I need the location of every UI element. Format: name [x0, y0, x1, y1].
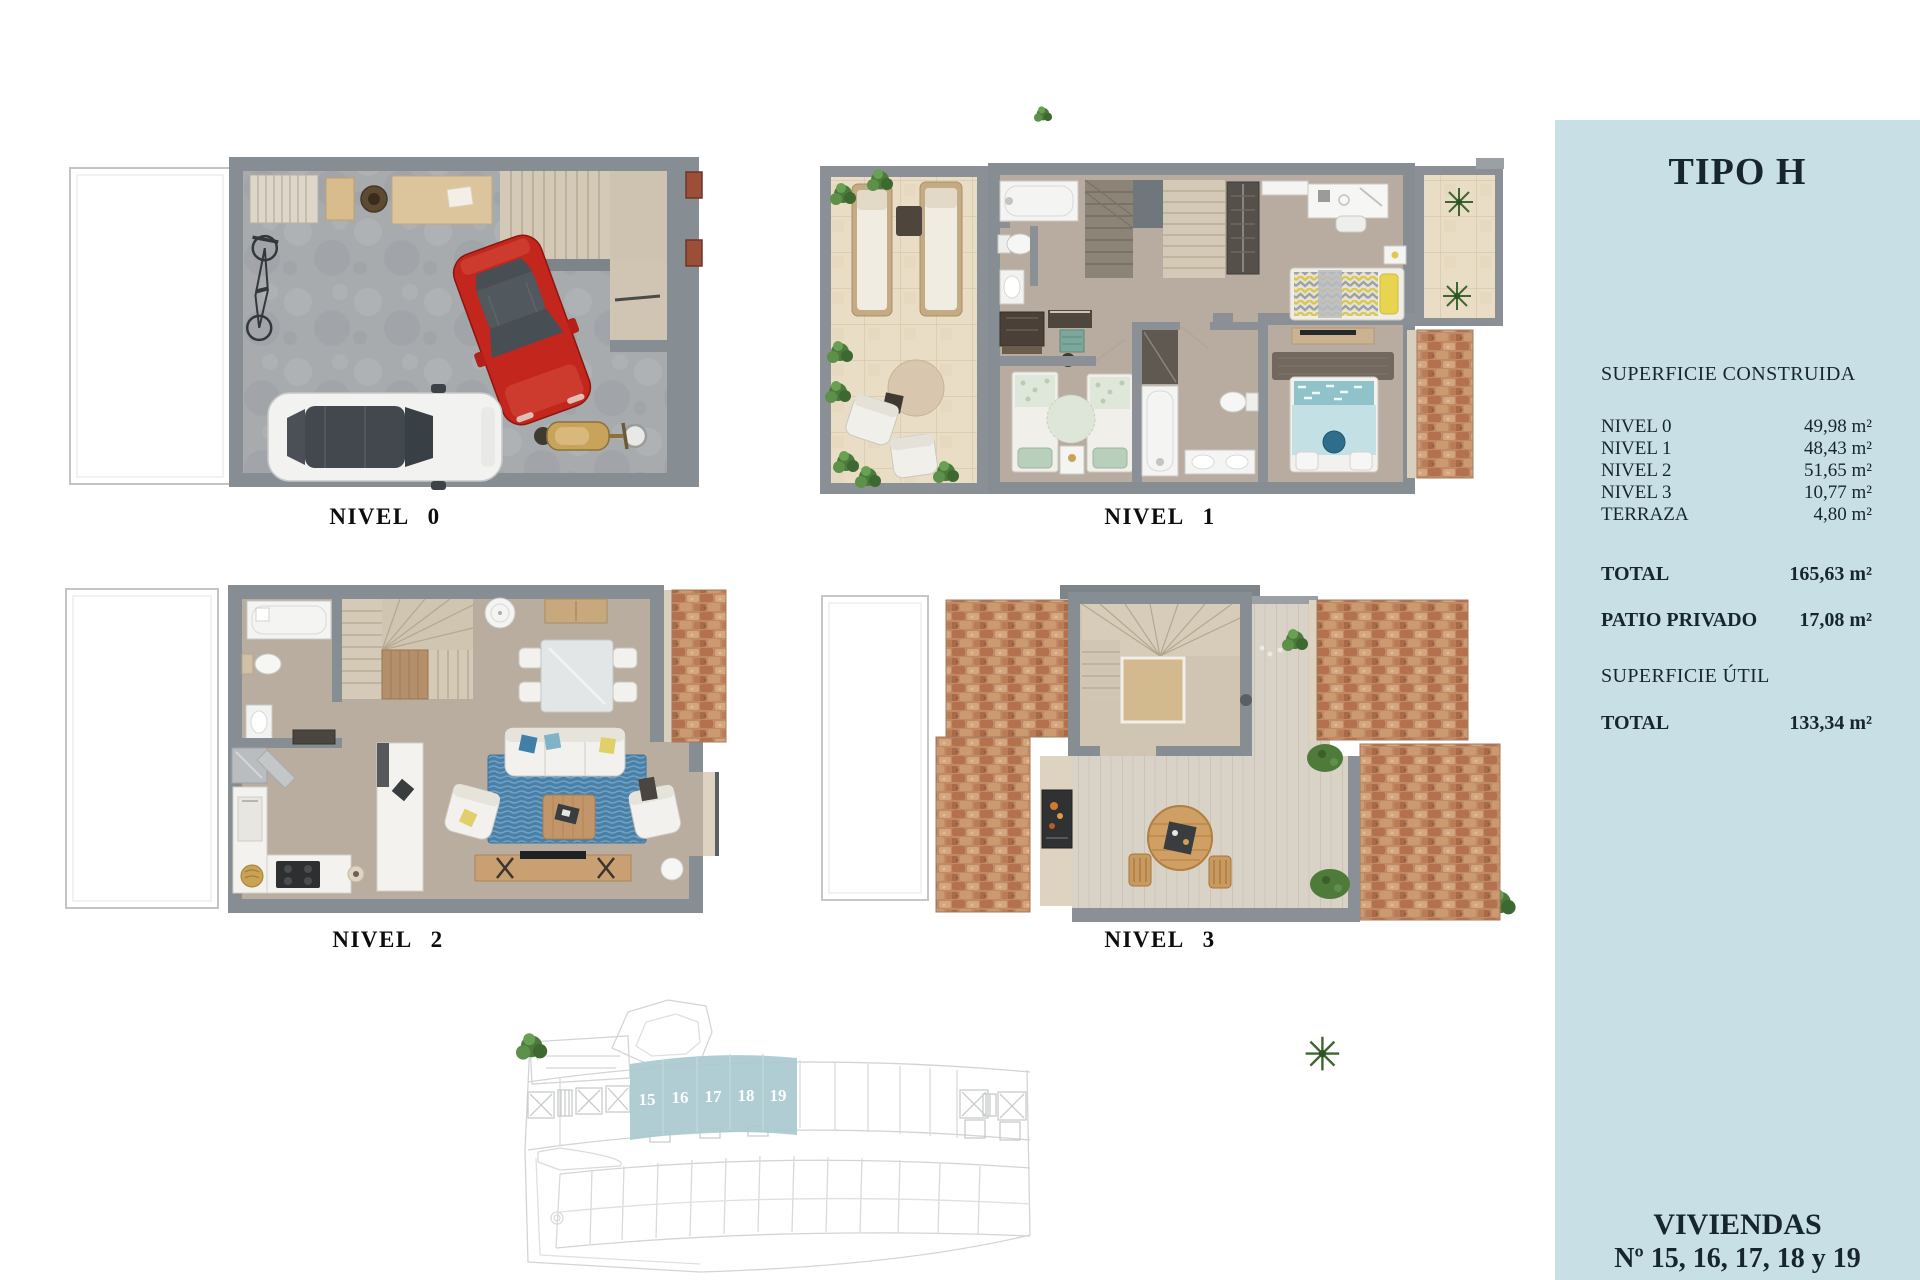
type-title: TIPO H — [1555, 150, 1920, 194]
floor-lamp — [661, 858, 683, 880]
unit-number: 15 — [639, 1090, 656, 1109]
bush — [1310, 869, 1350, 899]
sun-lounger — [920, 182, 962, 316]
white-car — [268, 384, 502, 490]
dwellings-title: VIVIENDAS — [1555, 1208, 1920, 1242]
terrace-wall — [1252, 596, 1318, 604]
surface-row: TERRAZA 4,80 m² — [1601, 504, 1872, 526]
sun-lounger — [852, 184, 892, 316]
coffee-table — [543, 795, 595, 839]
nivel1-caption: NIVEL 1 — [818, 504, 1502, 530]
surface-row: NIVEL 2 51,65 m² — [1601, 460, 1872, 482]
surface-row-value: 10,77 m² — [1804, 482, 1872, 504]
patio-value: 17,08 m² — [1799, 609, 1872, 632]
surface-row: NIVEL 0 49,98 m² — [1601, 416, 1872, 438]
spec-sidebar: TIPO H SUPERFICIE CONSTRUIDA NIVEL 0 49,… — [1555, 120, 1920, 1280]
nivel2-caption: NIVEL 2 — [66, 927, 710, 953]
armchair — [889, 433, 938, 479]
teal-cabinet — [1060, 330, 1084, 352]
site-plan: 15 16 17 18 19 — [525, 1000, 1030, 1272]
built-surface-table: NIVEL 0 49,98 m² NIVEL 1 48,43 m² NIVEL … — [1601, 416, 1872, 526]
brick-roof — [672, 590, 726, 742]
brick-roof — [1317, 600, 1468, 740]
total-row: TOTAL 165,63 m² — [1601, 563, 1872, 586]
stairs — [342, 599, 473, 699]
surface-row-label: NIVEL 3 — [1601, 482, 1672, 504]
terrace-table — [896, 206, 922, 236]
surface-row-value: 49,98 m² — [1804, 416, 1872, 438]
unit-number: 16 — [672, 1088, 689, 1107]
terrace-chair — [1129, 854, 1151, 886]
sofa — [505, 728, 625, 776]
patio-outline — [70, 168, 230, 484]
surface-row-label: NIVEL 2 — [1601, 460, 1672, 482]
surface-row: NIVEL 1 48,43 m² — [1601, 438, 1872, 460]
usable-surface-heading: SUPERFICIE ÚTIL — [1601, 665, 1872, 688]
patio-outline — [822, 596, 928, 900]
tv-console — [475, 851, 631, 881]
storage-shelf — [250, 175, 318, 223]
surface-row-value: 48,43 m² — [1804, 438, 1872, 460]
surface-row-label: NIVEL 1 — [1601, 438, 1672, 460]
storage-box — [326, 178, 354, 220]
brick-roof — [1360, 744, 1500, 920]
total-label: TOTAL — [1601, 563, 1669, 586]
surface-row-label: NIVEL 0 — [1601, 416, 1672, 438]
scooter — [534, 422, 646, 450]
nivel3-caption: NIVEL 3 — [818, 927, 1502, 953]
total-value: 165,63 m² — [1789, 563, 1872, 586]
terrace-left — [820, 166, 988, 494]
entry-vestibule — [610, 259, 667, 352]
balcony — [689, 772, 719, 856]
edge-strip — [1407, 330, 1417, 478]
sideboard — [293, 730, 335, 744]
bush — [1307, 744, 1343, 772]
private-patio-row: PATIO PRIVADO 17,08 m² — [1601, 609, 1872, 632]
round-rug — [1047, 395, 1095, 443]
brick-roof — [946, 600, 1070, 737]
plan-nivel2 — [66, 585, 726, 1060]
double-bed — [1290, 377, 1378, 472]
round-table — [1148, 806, 1212, 870]
surface-row-label: TERRAZA — [1601, 504, 1689, 526]
unit-number: 18 — [738, 1086, 755, 1105]
unit-number: 17 — [705, 1087, 723, 1106]
patio-label: PATIO PRIVADO — [1601, 609, 1757, 632]
edge-strip — [664, 590, 672, 742]
workbench — [392, 176, 492, 224]
brick-roof — [936, 737, 1030, 912]
dwellings-footer: VIVIENDAS Nº 15, 16, 17, 18 y 19 — [1555, 1208, 1920, 1276]
terrace-chair — [1209, 856, 1231, 888]
bbq — [1042, 790, 1072, 848]
usable-total-value: 133,34 m² — [1789, 712, 1872, 735]
surface-row: NIVEL 3 10,77 m² — [1601, 482, 1872, 504]
plan-nivel0 — [70, 157, 702, 490]
brick-roof — [1417, 330, 1473, 478]
surface-row-value: 4,80 m² — [1814, 504, 1872, 526]
nivel0-caption: NIVEL 0 — [70, 504, 700, 530]
hall-closet — [1000, 312, 1044, 354]
chevron-bed — [1290, 268, 1404, 320]
stair-tower — [1060, 585, 1260, 758]
surface-row-value: 51,65 m² — [1804, 460, 1872, 482]
patio-outline — [66, 589, 218, 908]
usable-total-row: TOTAL 133,34 m² — [1601, 712, 1872, 735]
plant-pot — [361, 186, 387, 212]
built-surface-heading: SUPERFICIE CONSTRUIDA — [1601, 363, 1872, 386]
edge-strip — [1309, 600, 1317, 740]
dwellings-numbers: Nº 15, 16, 17, 18 y 19 — [1555, 1242, 1920, 1276]
plan-nivel1 — [820, 106, 1504, 494]
brochure-page: 15 16 17 18 19 — [0, 0, 1920, 1280]
unit-number: 19 — [770, 1086, 787, 1105]
usable-total-label: TOTAL — [1601, 712, 1669, 735]
